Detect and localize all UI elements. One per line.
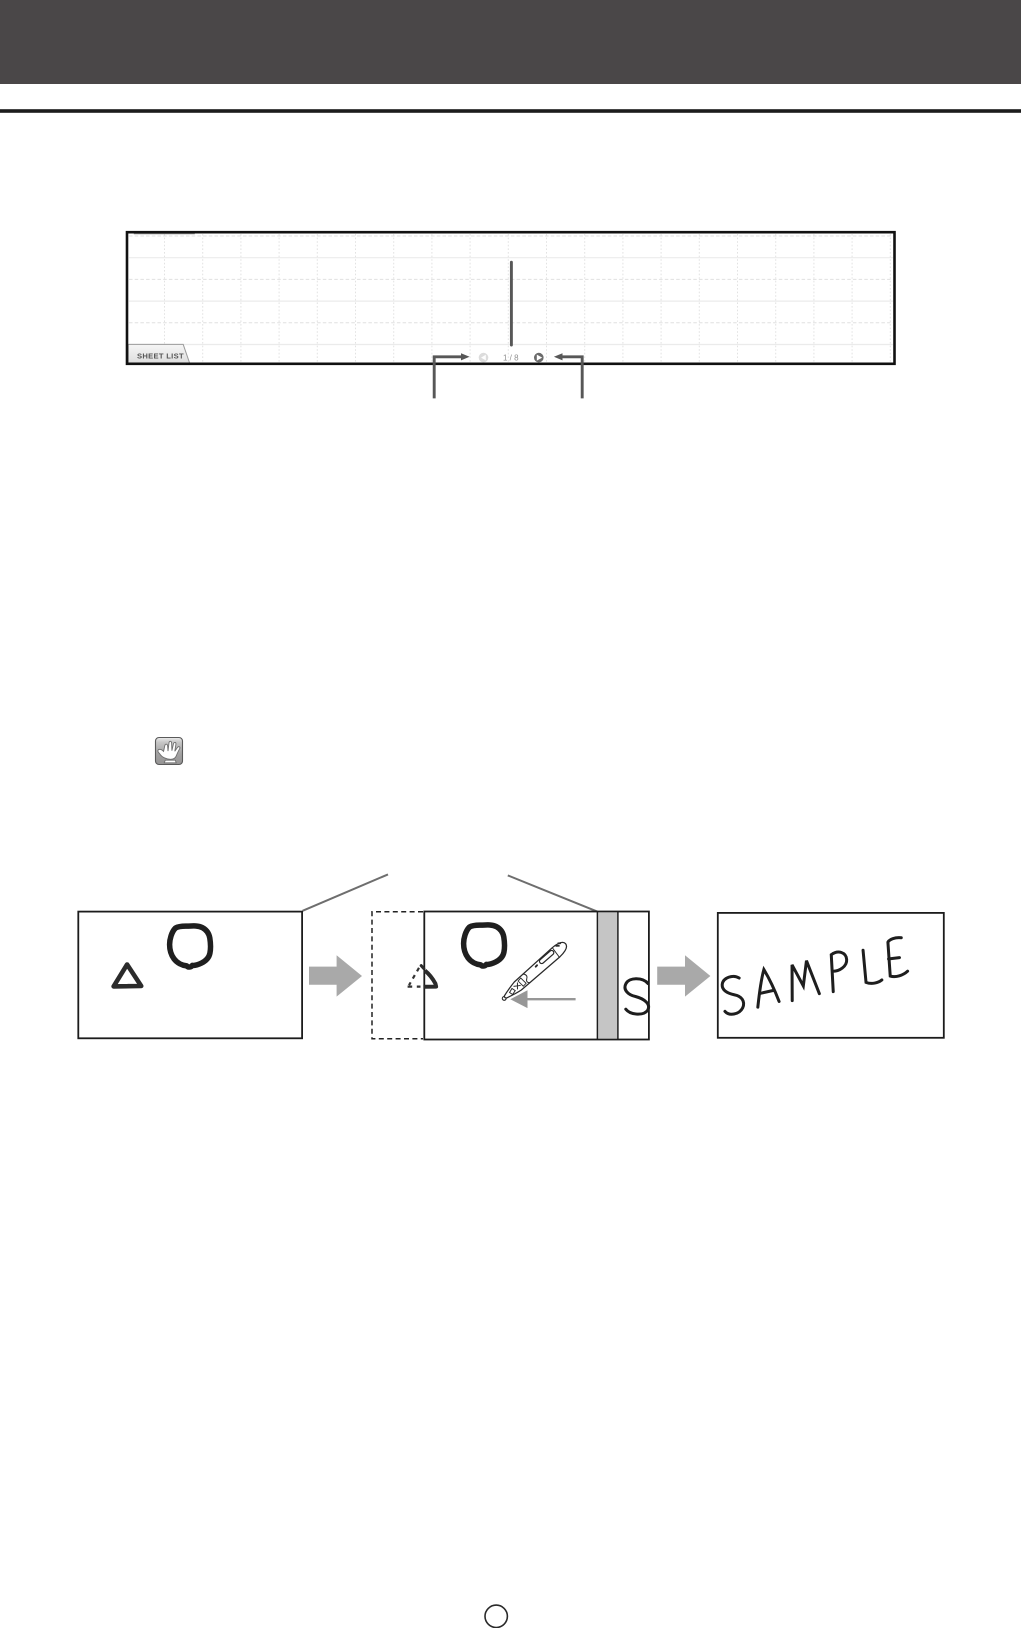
- svg-text:1 / 8: 1 / 8: [503, 354, 519, 363]
- svg-text:SHEET LIST: SHEET LIST: [137, 351, 184, 360]
